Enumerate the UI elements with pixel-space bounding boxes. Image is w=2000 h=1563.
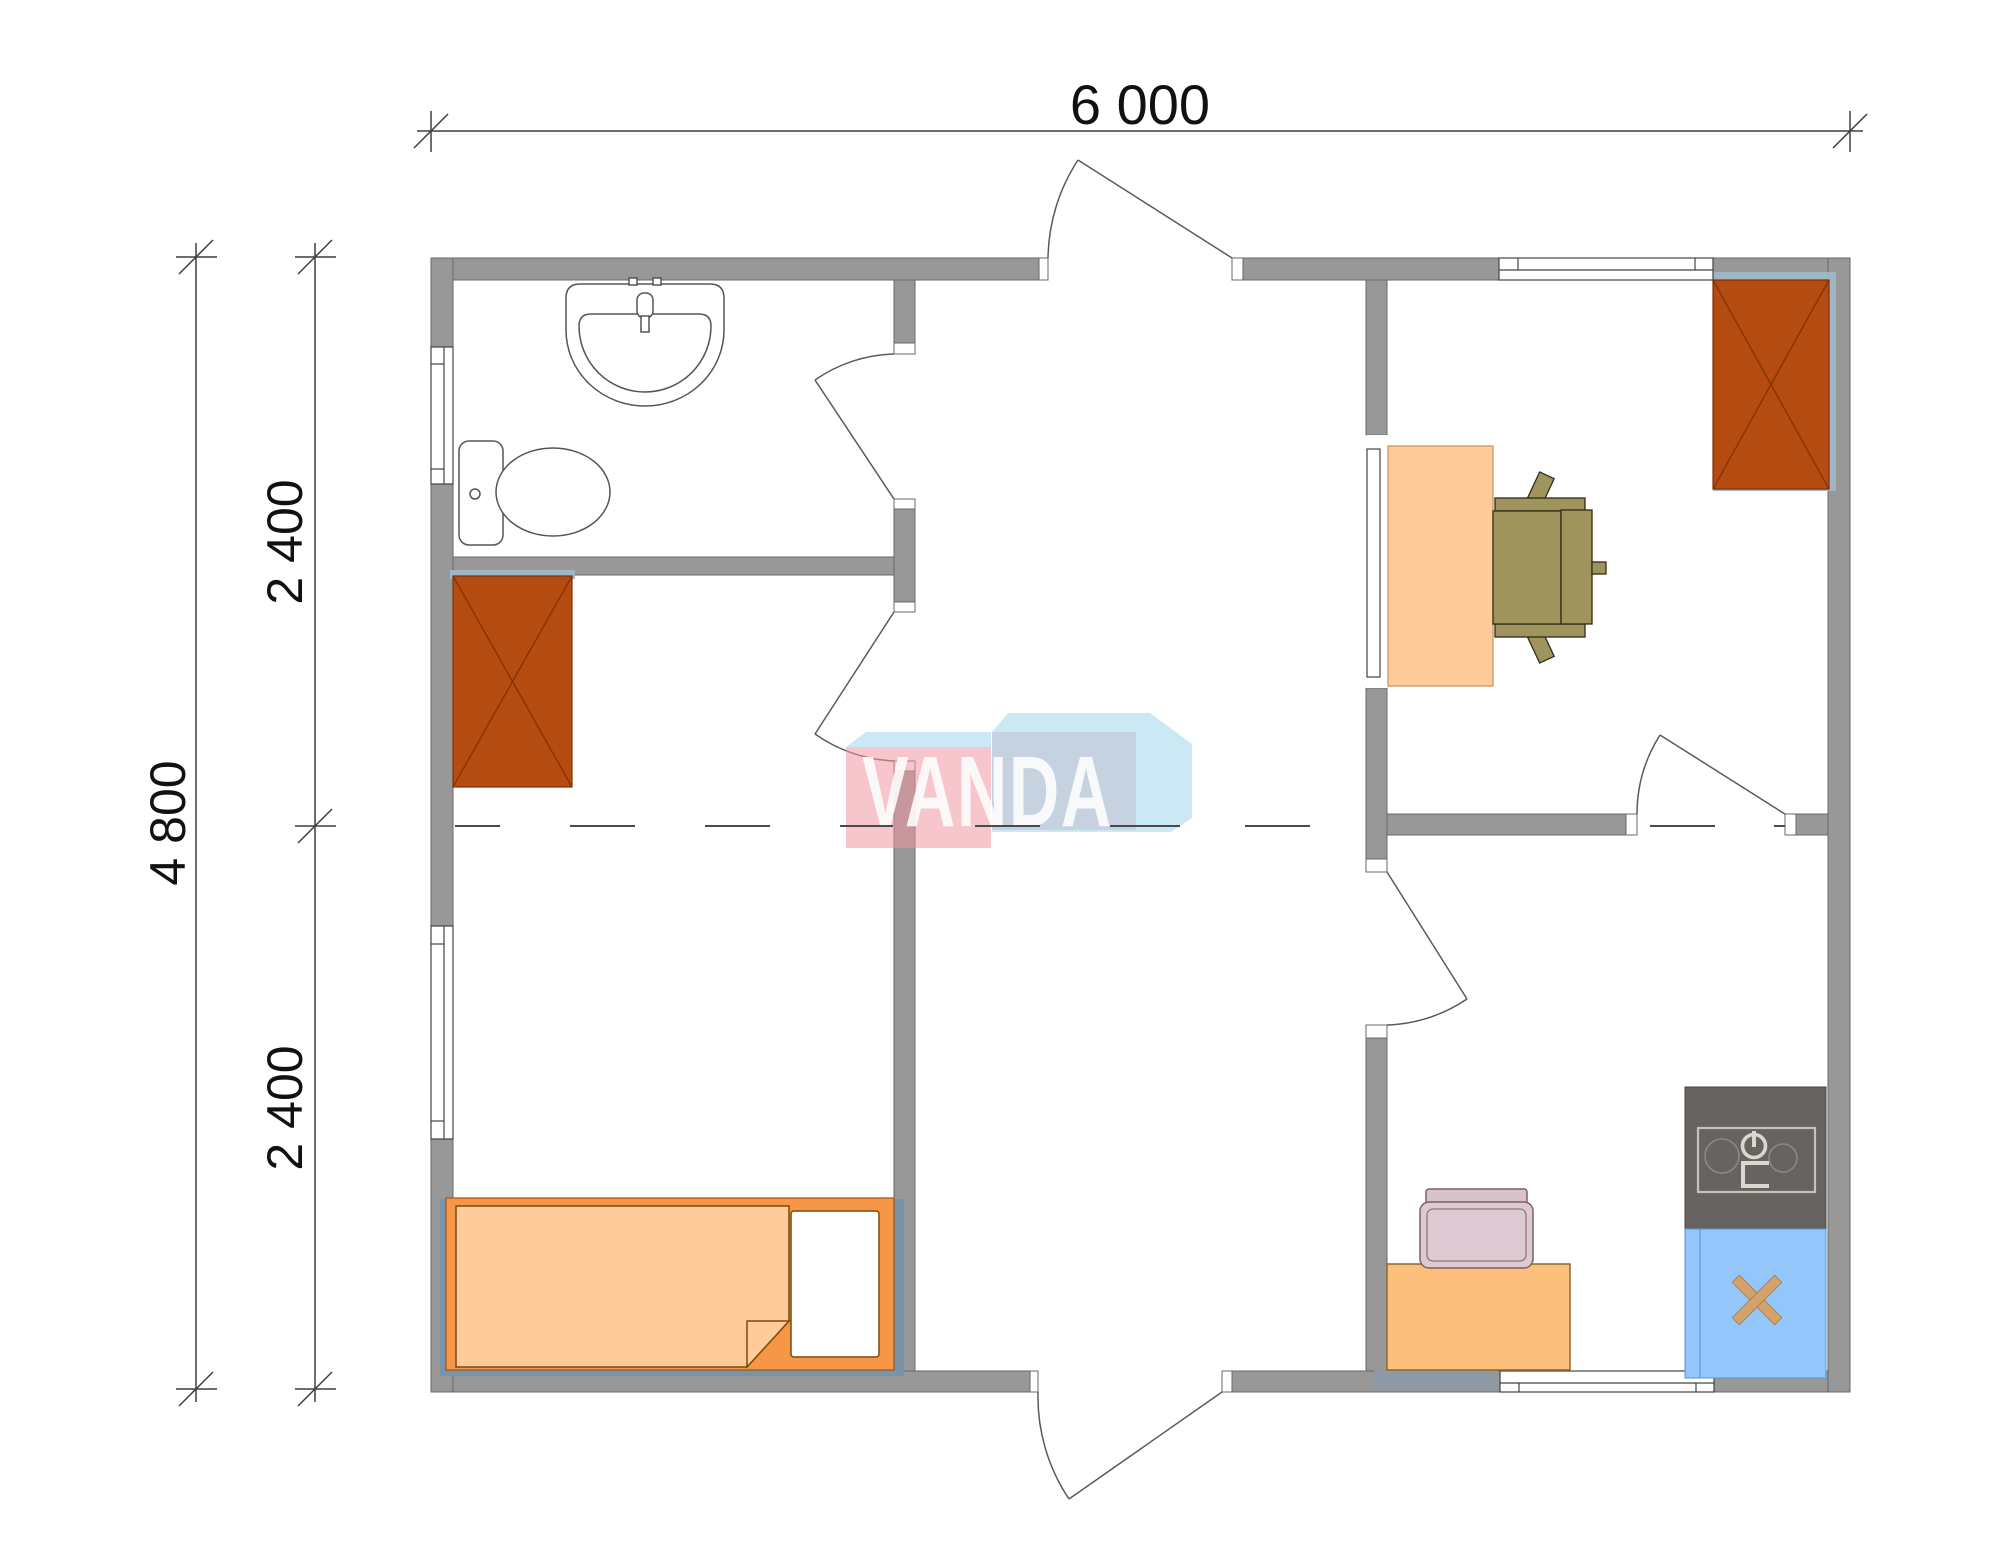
svg-text:4 800: 4 800 <box>140 760 196 885</box>
svg-text:6 000: 6 000 <box>1070 73 1210 136</box>
svg-text:VANDA: VANDA <box>862 737 1113 848</box>
svg-text:2 400: 2 400 <box>257 479 313 604</box>
svg-text:2 400: 2 400 <box>257 1045 313 1170</box>
